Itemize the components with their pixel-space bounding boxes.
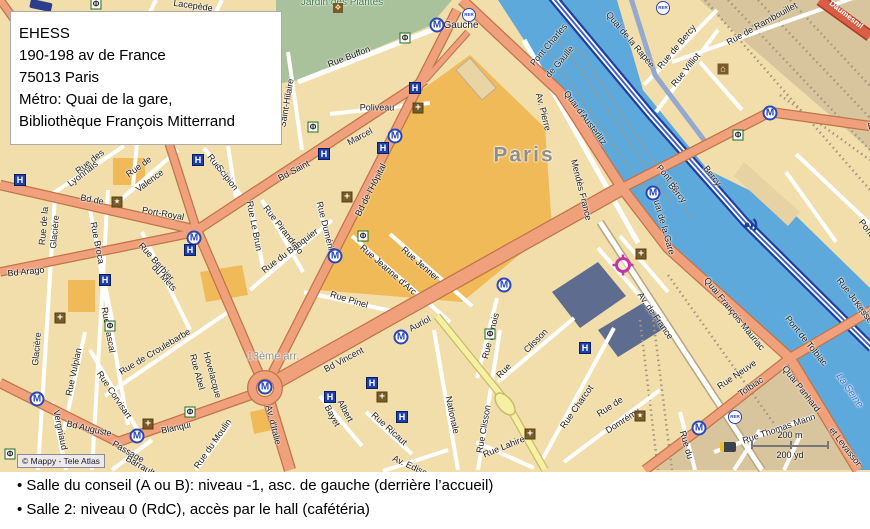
metro-icon: M — [30, 392, 45, 407]
bank-icon: Φ — [400, 33, 411, 44]
address-line: Bibliothèque François Mitterrand — [19, 111, 281, 133]
bank-icon: Φ — [105, 321, 116, 332]
star-icon: ★ — [112, 197, 123, 208]
scale-imperial: 200 yd — [745, 450, 835, 460]
page: LacepèdeJardin des PlantesRue BuffonPoli… — [0, 0, 870, 529]
church-icon: + — [525, 429, 536, 440]
metro-icon: M — [130, 429, 145, 444]
hotel-icon: H — [14, 174, 26, 186]
hotel-icon: H — [377, 142, 389, 154]
metro-icon: M — [646, 186, 661, 201]
hotel-icon: H — [396, 411, 408, 423]
hotel-icon: H — [99, 274, 111, 286]
bank-icon: Φ — [733, 130, 744, 141]
metro-icon: M — [430, 18, 445, 33]
metro-icon: M — [258, 380, 273, 395]
metro-icon: M — [388, 129, 403, 144]
footer-note: • Salle du conseil (A ou B): niveau -1, … — [17, 474, 857, 498]
hotel-icon: H — [318, 148, 330, 160]
scale-bar: 200 m 200 yd — [745, 430, 835, 460]
rer-icon: RER — [462, 8, 476, 22]
scale-metric: 200 m — [745, 430, 835, 440]
map-copyright: © Mappy - Tele Atlas — [17, 454, 105, 468]
scale-line — [751, 441, 829, 449]
metro-icon: M — [497, 278, 512, 293]
metro-icon: M — [328, 249, 343, 264]
hotel-icon: H — [184, 244, 196, 256]
bank-icon: Φ — [5, 449, 16, 460]
hotel-icon: H — [366, 377, 378, 389]
address-line: EHESS — [19, 23, 281, 45]
bank-icon: Φ — [308, 122, 319, 133]
hotel-icon: H — [579, 342, 591, 354]
bank-icon: Φ — [185, 407, 196, 418]
star-icon: ★ — [635, 411, 646, 422]
monument-icon: ⌂ — [718, 64, 729, 75]
bank-icon: Φ — [358, 231, 369, 242]
church-icon: + — [55, 313, 66, 324]
footer-notes: • Salle du conseil (A ou B): niveau -1, … — [17, 474, 857, 522]
hotel-icon: H — [192, 154, 204, 166]
bank-icon: Φ — [91, 0, 102, 10]
church-icon: + — [377, 392, 388, 403]
church-icon: + — [143, 419, 154, 430]
rer-icon: RER — [656, 1, 670, 15]
park-icon: ❖ — [333, 3, 343, 13]
church-icon: + — [413, 103, 424, 114]
church-icon: + — [636, 249, 647, 260]
footer-note: • Salle 2: niveau 0 (RdC), accès par le … — [17, 498, 857, 522]
address-overlay: EHESS 190-198 av de France 75013 Paris M… — [10, 11, 282, 145]
address-line: Métro: Quai de la gare, — [19, 89, 281, 111]
address-line: 190-198 av de France — [19, 45, 281, 67]
bank-icon: Φ — [485, 329, 496, 340]
address-line: 75013 Paris — [19, 67, 281, 89]
hotel-icon: H — [409, 82, 421, 94]
map-canvas: LacepèdeJardin des PlantesRue BuffonPoli… — [0, 0, 870, 472]
church-icon: + — [342, 192, 353, 203]
metro-icon: M — [394, 330, 409, 345]
metro-icon: M — [763, 106, 778, 121]
hotel-icon: H — [324, 391, 336, 403]
rer-icon: RER — [728, 410, 742, 424]
metro-icon: M — [692, 421, 707, 436]
train-icon — [720, 442, 736, 452]
